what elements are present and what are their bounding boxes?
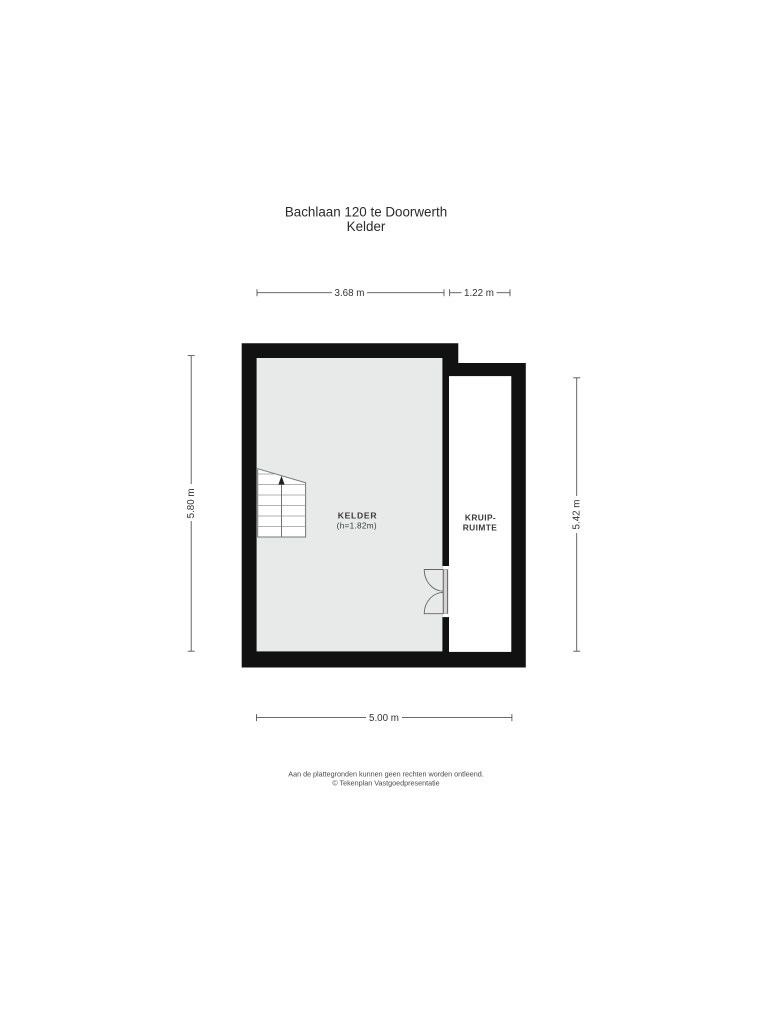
svg-text:5.80 m: 5.80 m bbox=[186, 488, 197, 518]
svg-text:5.42 m: 5.42 m bbox=[571, 500, 582, 530]
svg-text:Aan de plattegronden kunnen ge: Aan de plattegronden kunnen geen rechten… bbox=[288, 770, 483, 779]
svg-text:© Tekenplan Vastgoedpresentati: © Tekenplan Vastgoedpresentatie bbox=[332, 779, 439, 788]
svg-text:(h=1.82m): (h=1.82m) bbox=[337, 522, 377, 531]
svg-text:Bachlaan 120 te Doorwerth: Bachlaan 120 te Doorwerth bbox=[285, 205, 447, 220]
svg-text:1.22 m: 1.22 m bbox=[464, 288, 494, 299]
svg-text:Kelder: Kelder bbox=[347, 219, 386, 234]
svg-text:RUIMTE: RUIMTE bbox=[463, 523, 498, 533]
svg-text:3.68 m: 3.68 m bbox=[335, 288, 365, 299]
svg-text:5.00 m: 5.00 m bbox=[369, 713, 399, 724]
svg-text:KRUIP-: KRUIP- bbox=[465, 512, 496, 522]
svg-text:KELDER: KELDER bbox=[338, 510, 378, 520]
